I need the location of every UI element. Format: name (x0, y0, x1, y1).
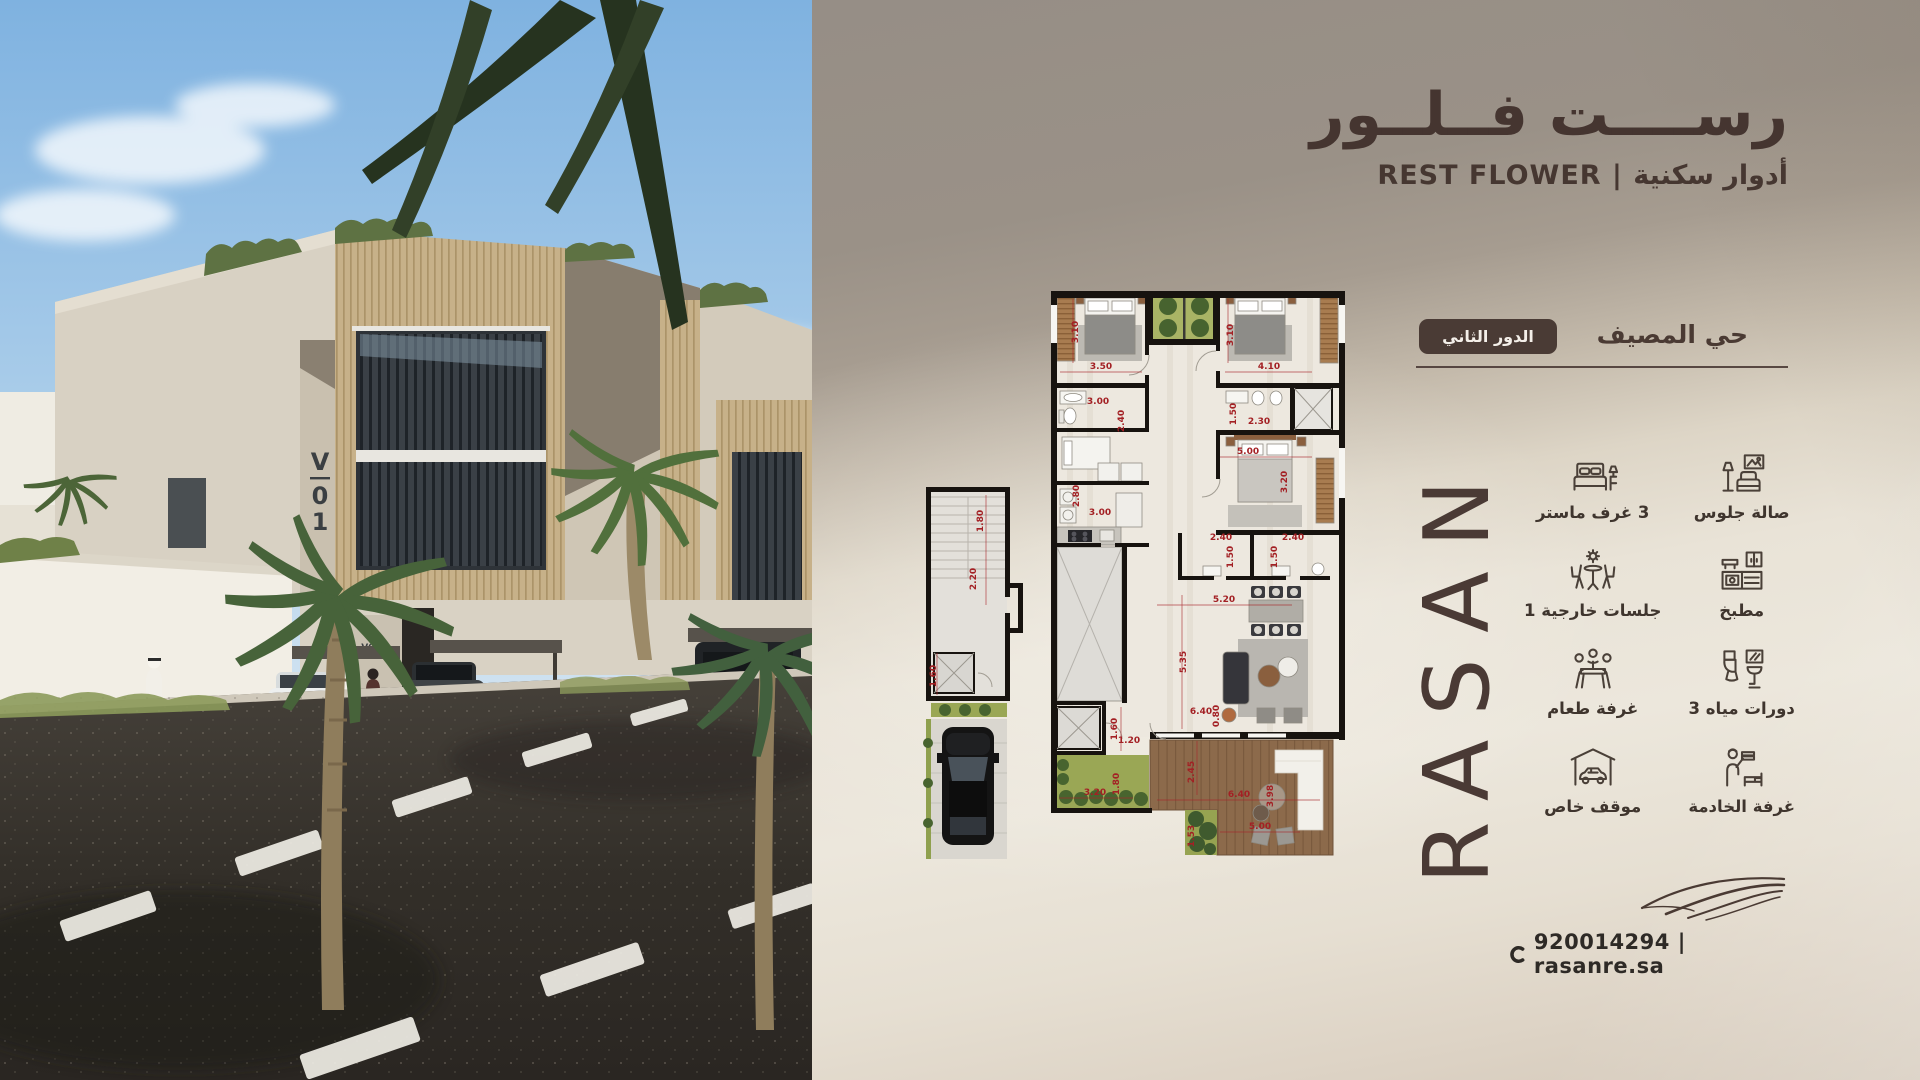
parked-car (937, 727, 999, 845)
feature-label: دورات مياه 3 (1689, 699, 1795, 718)
dimension-label: 3.50 (1090, 362, 1112, 372)
dimension-label: 2.40 (1117, 410, 1127, 432)
dimension-label: 5.00 (1249, 822, 1271, 832)
maid-room-icon (1717, 744, 1767, 790)
dimension-label: 1.50 (1226, 546, 1236, 568)
district-label: حي المصيف (1597, 320, 1748, 349)
dimension-label: 3.10 (1226, 324, 1236, 346)
floor-plan: 3.103.503.104.103.002.401.502.305.003.20… (920, 283, 1350, 863)
dimension-label: 1.50 (1270, 546, 1280, 568)
svg-text:V: V (311, 448, 330, 476)
floor-badge: الدور الثاني (1419, 319, 1557, 354)
carport-icon (1568, 744, 1618, 790)
kitchen-icon (1717, 548, 1767, 594)
feature-label: جلسات خارجية 1 (1524, 601, 1661, 620)
dimension-label: 0.80 (1212, 705, 1222, 727)
page-subtitle: REST FLOWER | أدوار سكنية (1377, 160, 1788, 191)
feature-bathrooms: دورات مياه 3 (1677, 646, 1806, 718)
dining-icon (1568, 646, 1618, 692)
feature-label: 3 غرف ماستر (1536, 503, 1649, 522)
feature-outdoor-seating: جلسات خارجية 1 (1524, 548, 1661, 620)
villa-exterior-photo: V 0 1 V02 (0, 0, 812, 1080)
feature-label: صالة جلوس (1694, 503, 1790, 522)
svg-text:1: 1 (312, 508, 329, 536)
dimension-label: 4.10 (1258, 362, 1280, 372)
dimension-label: 2.45 (1187, 761, 1197, 783)
feature-label: مطبخ (1719, 601, 1764, 620)
dimension-label: 1.80 (1112, 773, 1122, 795)
bathroom-icon (1717, 646, 1767, 692)
dimension-label: 5.20 (1213, 595, 1235, 605)
contact-text: 920014294 | rasanre.sa (1534, 930, 1792, 978)
dimension-label: 5.35 (1179, 651, 1189, 673)
feature-label: موقف خاص (1544, 797, 1641, 816)
dimension-label: 5.00 (1237, 447, 1259, 457)
feature-list: 3 غرف ماستر صالة جلوس جلسات خارجية 1 (1524, 450, 1806, 816)
brochure-page: V 0 1 V02 (0, 0, 1920, 1080)
dimension-label: 3.00 (1089, 508, 1111, 518)
feature-sitting-hall: صالة جلوس (1677, 450, 1806, 522)
brand-wordmark-vertical: RASAN (1408, 420, 1508, 920)
dimension-label: 1.20 (1118, 736, 1140, 746)
dimension-label: 3.20 (1280, 471, 1290, 493)
dimension-label: 3.00 (1087, 397, 1109, 407)
dimension-label: 2.80 (1072, 485, 1082, 507)
dimension-label: 2.40 (1282, 533, 1304, 543)
street (0, 668, 812, 1080)
feature-maid-room: غرفة الخادمة (1677, 744, 1806, 816)
svg-text:0: 0 (312, 482, 329, 510)
dimension-label: 1.60 (929, 665, 939, 687)
dimension-label: 6.40 (1228, 790, 1250, 800)
dimension-label: 3.10 (1071, 321, 1081, 343)
dimension-label: 2.30 (1248, 417, 1270, 427)
contact-row: 920014294 | rasanre.sa (1510, 930, 1792, 978)
feature-label: غرفة الخادمة (1688, 797, 1795, 816)
feature-private-parking: موقف خاص (1524, 744, 1661, 816)
dimension-label: 2.40 (1210, 533, 1232, 543)
dimension-label: 2.20 (969, 568, 979, 590)
bed-icon (1568, 450, 1618, 496)
dimension-label: 1.50 (1229, 403, 1239, 425)
dimension-label: 3.98 (1266, 785, 1276, 807)
dimension-label: 3.20 (1084, 788, 1106, 798)
sofa-icon (1717, 450, 1767, 496)
page-title: رســــت فــلــور (1310, 84, 1788, 147)
feature-kitchen: مطبخ (1677, 548, 1806, 620)
feature-label: غرفة طعام (1547, 699, 1638, 718)
phone-icon (1510, 945, 1527, 964)
feature-dining-room: غرفة طعام (1524, 646, 1661, 718)
dimension-label: 1.53 (1187, 825, 1197, 847)
dimension-label: 1.80 (976, 510, 986, 532)
building-sign-v01: V 0 1 (310, 448, 330, 536)
brand-swoosh-logo (1636, 870, 1790, 924)
divider-line (1416, 366, 1788, 368)
feature-master-bedrooms: 3 غرف ماستر (1524, 450, 1661, 522)
dimension-label: 6.40 (1190, 707, 1212, 717)
outdoor-seating-icon (1568, 548, 1618, 594)
